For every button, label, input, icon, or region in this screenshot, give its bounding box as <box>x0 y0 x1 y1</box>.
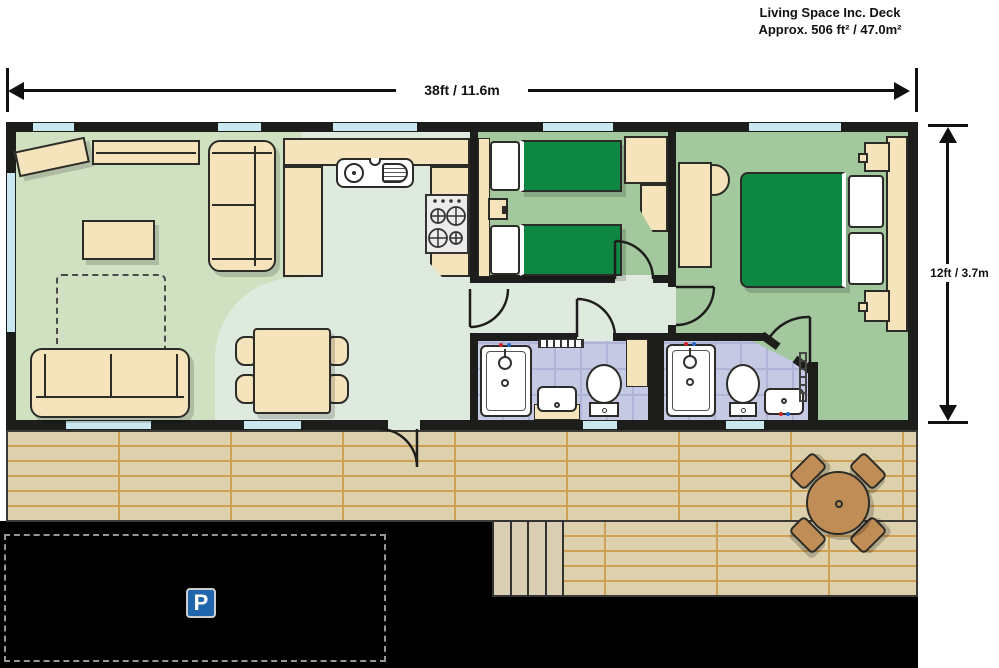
deck-upper <box>6 430 918 522</box>
sink-tap <box>369 158 381 166</box>
coffee-table <box>82 220 155 260</box>
sink-drainer <box>382 163 408 183</box>
wall-twin-double-a <box>668 132 676 287</box>
wall-bottom-e <box>618 420 725 430</box>
double-bed-pillow-1 <box>848 175 884 228</box>
bedside-lamp-2 <box>858 302 868 312</box>
wall-twin-bottom-b <box>653 275 668 283</box>
step-2 <box>512 522 528 595</box>
wall-bath-left <box>470 341 478 420</box>
shower-1 <box>480 345 532 417</box>
corner-sofa-arm-top <box>212 152 272 154</box>
toilet-2-cistern <box>729 402 757 417</box>
wall-bottom-a <box>6 420 65 430</box>
dressing-table <box>678 162 712 268</box>
wall-twin-bottom-a <box>470 275 615 283</box>
window-living-top-1 <box>32 122 75 132</box>
arrow-down-icon <box>939 405 957 421</box>
window-twin-bedroom <box>542 122 614 132</box>
window-living-bottom-2 <box>243 420 302 430</box>
shower-2-head-icon <box>683 355 697 369</box>
double-bedside-table-1 <box>864 142 890 172</box>
washbasin-2-drain <box>781 398 787 404</box>
shower-2-stem <box>689 348 691 356</box>
patio-table <box>806 471 870 535</box>
twin-bed-2-pillow <box>490 225 520 275</box>
step-3 <box>529 522 545 595</box>
patio-table-center <box>835 500 843 508</box>
width-dim-tick-right <box>915 68 918 112</box>
shower-2 <box>666 344 716 417</box>
driveway-left: P <box>0 521 492 668</box>
corner-sofa-arm-bottom <box>212 258 272 260</box>
dining-chair-3 <box>329 336 349 366</box>
corner-sofa-seat-line <box>212 204 254 206</box>
arrow-left-icon <box>8 82 24 100</box>
width-dim-label: 38ft / 11.6m <box>396 80 528 100</box>
wall-bottom-f <box>765 420 918 430</box>
sofa-seat-line <box>110 354 112 396</box>
twin-bed-2 <box>520 224 622 276</box>
window-kitchen <box>332 122 418 132</box>
arrow-up-icon <box>939 127 957 143</box>
kitchen-counter-left <box>283 166 323 277</box>
dining-chair-4 <box>329 374 349 404</box>
parking-sign: P <box>186 588 216 618</box>
step-1 <box>494 522 510 595</box>
corner-sofa-back-line <box>254 146 256 266</box>
towel-rail <box>799 352 807 402</box>
shower-1-drain <box>501 379 509 387</box>
twin-wardrobe <box>624 136 668 184</box>
wall-left-b <box>6 333 16 430</box>
entrance-threshold <box>388 420 420 430</box>
double-bed <box>740 172 846 288</box>
bedside-lamp-1 <box>858 153 868 163</box>
window-living-side <box>6 172 16 333</box>
washbasin-2-cold-dot <box>786 412 790 416</box>
sideboard-shelf-line <box>96 152 196 154</box>
wall-bottom-d <box>420 420 582 430</box>
toilet-2-bowl <box>726 364 760 404</box>
caption: Living Space Inc. Deck Approx. 506 ft² /… <box>738 4 922 38</box>
window-living-bottom-1 <box>65 420 152 430</box>
toilet-1-bowl <box>586 364 622 404</box>
twin-bed-1-pillow <box>490 141 520 191</box>
toilet-1-cistern <box>589 402 619 417</box>
window-living-top-2 <box>217 122 262 132</box>
height-dim-label: 12ft / 3.7m <box>920 264 999 282</box>
washbasin-2-hot-dot <box>779 412 783 416</box>
wall-bottom-b <box>152 420 243 430</box>
shower-1-cold-dot <box>507 343 511 347</box>
twin-bedside-knob <box>502 206 506 214</box>
washbasin-1-drain <box>554 402 560 408</box>
floorplan-canvas: Living Space Inc. Deck Approx. 506 ft² /… <box>0 0 999 668</box>
dining-chair-1 <box>235 336 255 366</box>
sofa-arm-right <box>176 354 178 396</box>
window-shower-room <box>582 420 618 430</box>
step-4 <box>547 522 563 595</box>
window-double-bedroom <box>748 122 842 132</box>
driveway-bottom <box>492 597 918 668</box>
shower-1-head-icon <box>498 356 512 370</box>
shower-1-stem <box>504 349 506 357</box>
sideboard <box>92 140 200 165</box>
hob-burners-icon <box>427 196 467 252</box>
twin-bedside-table <box>488 198 508 220</box>
shower-1-hot-dot <box>499 343 503 347</box>
sofa-arm-left <box>44 354 46 396</box>
sofa-back-line <box>36 396 184 398</box>
toilet-2-flush <box>741 408 746 413</box>
double-bedside-table-2 <box>864 290 890 322</box>
deck-steps <box>492 520 564 597</box>
wall-bath-top-c <box>666 333 766 341</box>
washbasin-1 <box>537 386 577 412</box>
height-dim-tick-bottom <box>928 421 968 424</box>
corner-sofa <box>208 140 276 272</box>
toilet-1-flush <box>602 408 607 413</box>
hob <box>425 194 469 254</box>
window-ensuite <box>725 420 765 430</box>
washbasin-2 <box>764 388 804 415</box>
shower-2-hot-dot <box>684 342 688 346</box>
bathroom-cabinet <box>626 339 648 387</box>
wall-left-a <box>6 122 16 172</box>
wall-kitchen-twin <box>470 132 478 283</box>
dining-chair-2 <box>235 374 255 404</box>
sink-drain <box>352 171 356 175</box>
wall-bottom-c <box>302 420 388 430</box>
caption-line2: Approx. 506 ft² / 47.0m² <box>738 21 922 38</box>
sofa <box>30 348 190 418</box>
wall-bath-divider <box>648 341 664 420</box>
dining-table <box>253 328 331 414</box>
radiator <box>538 339 584 348</box>
shower-2-cold-dot <box>692 342 696 346</box>
caption-line1: Living Space Inc. Deck <box>738 4 922 21</box>
shower-2-drain <box>686 378 694 386</box>
arrow-right-icon <box>894 82 910 100</box>
double-bed-pillow-2 <box>848 232 884 285</box>
wall-right <box>908 122 918 430</box>
kitchen-sink <box>336 158 414 188</box>
twin-bed-1 <box>520 140 622 192</box>
